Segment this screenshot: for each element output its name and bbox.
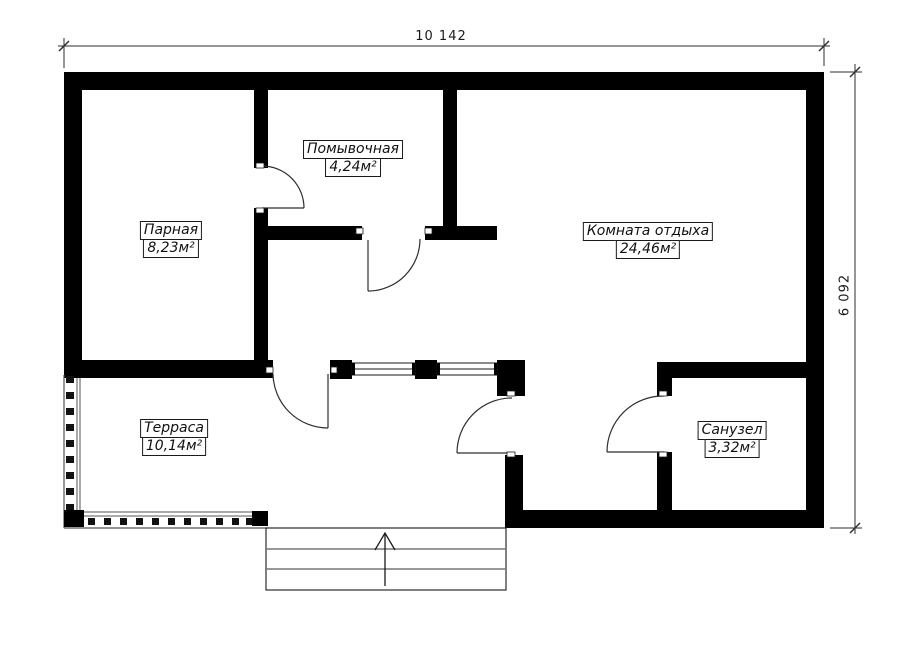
door-terrace xyxy=(273,374,328,428)
door-jambs xyxy=(256,163,667,457)
plan-drawing xyxy=(0,0,900,657)
room-area: 8,23м² xyxy=(143,239,198,258)
room-label-pomyvochnaya: Помывочная 4,24м² xyxy=(303,140,403,177)
room-label-terrasa: Терраса 10,14м² xyxy=(140,419,208,456)
door-parnaya xyxy=(262,166,304,208)
wall-pomyvochnaya-bottom-right xyxy=(425,226,497,240)
dimension-lines xyxy=(58,38,862,534)
railing-corner-post-left xyxy=(64,510,84,527)
wall-sanuzel-top xyxy=(657,362,806,378)
window-2 xyxy=(437,363,497,375)
door-pomyvochnaya xyxy=(368,239,420,291)
wall-entrance-lower xyxy=(505,455,523,510)
railing-posts-left xyxy=(66,376,74,511)
dimension-width-label: 10 142 xyxy=(415,29,467,44)
railing-posts-bottom xyxy=(88,518,253,525)
wall-bottom xyxy=(505,510,824,528)
room-area: 10,14м² xyxy=(142,437,206,456)
room-area: 4,24м² xyxy=(325,158,380,177)
room-label-parnaya: Парная 8,23м² xyxy=(140,221,202,258)
wall-left xyxy=(64,72,82,378)
room-area: 3,32м² xyxy=(704,439,759,458)
room-name: Терраса xyxy=(140,419,208,438)
wall-right xyxy=(806,72,824,528)
room-label-komnata-otdyha: Комната отдыха 24,46м² xyxy=(583,222,713,259)
wall-pomyvochnaya-bottom-left xyxy=(254,226,362,240)
wall-band-pier2 xyxy=(415,360,437,379)
wall-sanuzel-left-lower xyxy=(657,452,672,510)
window-1 xyxy=(352,363,415,375)
doors xyxy=(262,166,664,453)
door-sanuzel xyxy=(607,396,664,452)
floor-plan: Парная 8,23м² Помывочная 4,24м² Комната … xyxy=(0,0,900,657)
room-name: Парная xyxy=(140,221,202,240)
room-area: 24,46м² xyxy=(616,240,680,259)
dimension-height-label: 6 092 xyxy=(838,274,853,316)
room-label-sanuzel: Санузел 3,32м² xyxy=(698,421,767,458)
wall-parnaya-right-upper xyxy=(254,90,268,168)
room-name: Помывочная xyxy=(303,140,403,159)
wall-pomyvochnaya-right xyxy=(443,90,457,226)
entrance-stairs xyxy=(266,528,506,590)
room-name: Комната отдыха xyxy=(583,222,713,241)
interior-walls xyxy=(254,90,497,360)
wall-band-left xyxy=(64,360,273,378)
wall-top xyxy=(64,72,824,90)
stairs-direction-arrow xyxy=(375,533,395,586)
room-name: Санузел xyxy=(698,421,767,440)
door-entrance xyxy=(457,398,512,453)
railing-corner-post-right xyxy=(252,511,268,526)
